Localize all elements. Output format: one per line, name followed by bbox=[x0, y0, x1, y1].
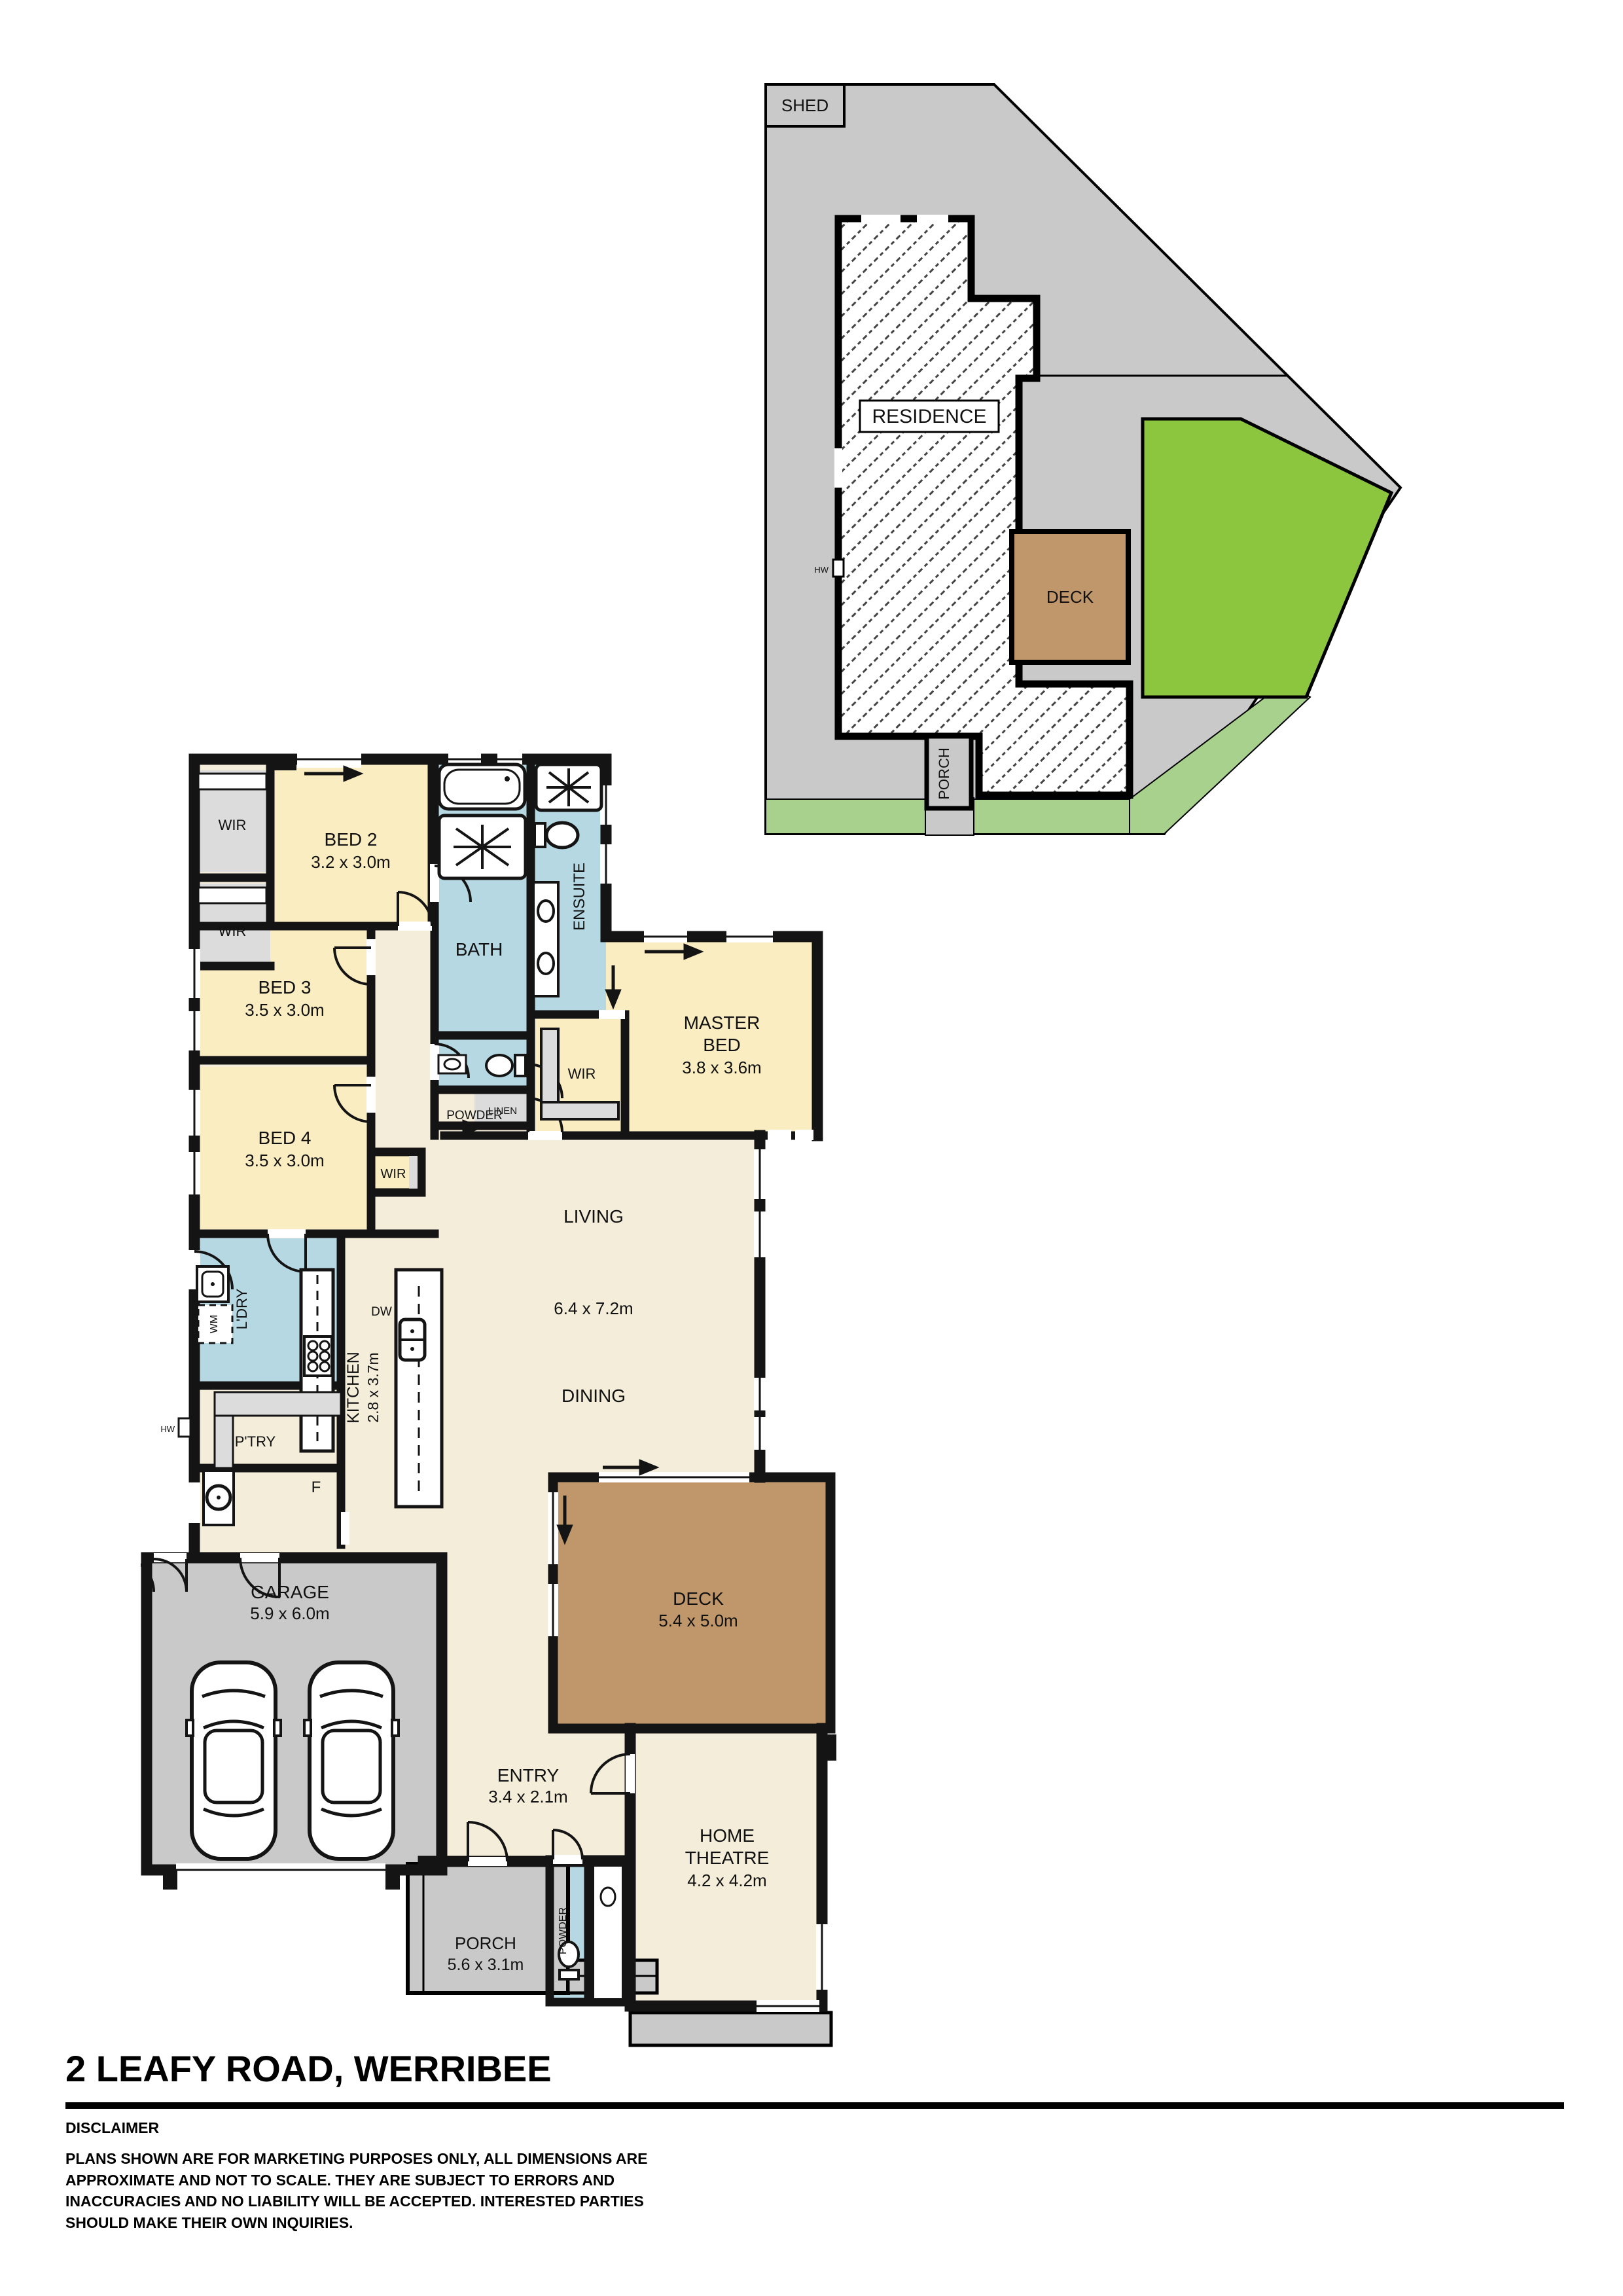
site-window bbox=[917, 215, 948, 223]
entry-dims: 3.4 x 2.1m bbox=[488, 1787, 567, 1806]
ptry-label: P'TRY bbox=[235, 1433, 276, 1450]
site-deck-label: DECK bbox=[1046, 587, 1094, 607]
wir-bed4-shelf bbox=[409, 1156, 418, 1189]
cylinder-cabinet bbox=[204, 1471, 234, 1525]
fridge-label: F bbox=[312, 1479, 321, 1496]
bed3-label: BED 3 bbox=[259, 977, 312, 997]
room-bed4 bbox=[194, 1067, 371, 1229]
wir1-label: WIR bbox=[219, 817, 247, 833]
master-wir-label: WIR bbox=[568, 1066, 596, 1082]
floorplan-page: SHED HW DECK PORCH RESIDENCE bbox=[0, 0, 1623, 2296]
disclaimer-body: PLANS SHOWN ARE FOR MARKETING PURPOSES O… bbox=[65, 2148, 668, 2234]
wm-label: WM bbox=[209, 1315, 220, 1333]
bed4-dims: 3.5 x 3.0m bbox=[245, 1151, 324, 1170]
entry-label: ENTRY bbox=[497, 1765, 560, 1785]
site-hw-unit bbox=[833, 560, 844, 577]
kitchen-label: KITCHEN bbox=[344, 1352, 363, 1424]
master-label-1: MASTER bbox=[684, 1013, 760, 1033]
disclaimer-heading: DISCLAIMER bbox=[65, 2119, 159, 2137]
site-hw-label: HW bbox=[814, 565, 829, 575]
bed4-label: BED 4 bbox=[259, 1128, 312, 1148]
bed3-dims: 3.5 x 3.0m bbox=[245, 1000, 324, 1020]
car bbox=[304, 1662, 399, 1859]
rear-walkway bbox=[630, 2013, 831, 2045]
ensuite-toilet bbox=[535, 823, 578, 848]
bath-label: BATH bbox=[455, 939, 503, 960]
kitchen-dims: 2.8 x 3.7m bbox=[365, 1352, 382, 1422]
kitchen-bench bbox=[301, 1270, 333, 1451]
living-dims: 6.4 x 7.2m bbox=[554, 1299, 633, 1318]
bath-shower bbox=[439, 816, 526, 878]
site-window bbox=[861, 215, 901, 223]
theatre-dims: 4.2 x 4.2m bbox=[687, 1871, 766, 1890]
ensuite-shower bbox=[536, 764, 601, 810]
dw-label: DW bbox=[371, 1305, 392, 1319]
page-title: 2 LEAFY ROAD, WERRIBEE bbox=[65, 2047, 552, 2090]
bathtub bbox=[439, 764, 525, 809]
site-plan: SHED HW DECK PORCH RESIDENCE bbox=[763, 82, 1404, 837]
theatre-label-1: HOME bbox=[700, 1825, 755, 1846]
hw-unit bbox=[179, 1418, 190, 1437]
wir2-label: WIR bbox=[219, 923, 247, 939]
hw-label: HW bbox=[160, 1424, 175, 1434]
garage-dims: 5.9 x 6.0m bbox=[250, 1604, 329, 1623]
porch-label: PORCH bbox=[455, 1933, 516, 1953]
porch-dims: 5.6 x 3.1m bbox=[448, 1956, 524, 1974]
master-label-2: BED bbox=[703, 1035, 741, 1055]
deck-label: DECK bbox=[673, 1588, 724, 1609]
garage-label: GARAGE bbox=[251, 1582, 329, 1602]
theatre-label-2: THEATRE bbox=[685, 1848, 770, 1868]
living-label: LIVING bbox=[563, 1206, 624, 1227]
master-dims: 3.8 x 3.6m bbox=[682, 1058, 761, 1077]
car bbox=[187, 1662, 281, 1859]
bed2-dims: 3.2 x 3.0m bbox=[311, 852, 390, 872]
floor-plan: BED 2 3.2 x 3.0m BED 3 3.5 x 3.0m BED 4 … bbox=[141, 733, 861, 2055]
ensuite-label: ENSUITE bbox=[571, 863, 588, 931]
ensuite-vanity bbox=[533, 882, 558, 996]
site-residence-label: RESIDENCE bbox=[872, 406, 986, 427]
site-window bbox=[834, 448, 842, 488]
powder2-label: POWDER bbox=[558, 1907, 569, 1954]
site-shed-label: SHED bbox=[781, 96, 829, 115]
dining-label: DINING bbox=[562, 1386, 626, 1406]
deck-dims: 5.4 x 5.0m bbox=[658, 1611, 738, 1630]
laundry-trough bbox=[197, 1266, 228, 1302]
kitchen-island bbox=[396, 1270, 442, 1507]
title-rule bbox=[65, 2102, 1564, 2109]
wir-bed4-label: WIR bbox=[381, 1167, 406, 1181]
ldry-label: L'DRY bbox=[234, 1288, 250, 1329]
bed2-label: BED 2 bbox=[325, 829, 378, 850]
linen-label: LINEN bbox=[488, 1105, 517, 1117]
site-porch-label: PORCH bbox=[936, 747, 952, 799]
